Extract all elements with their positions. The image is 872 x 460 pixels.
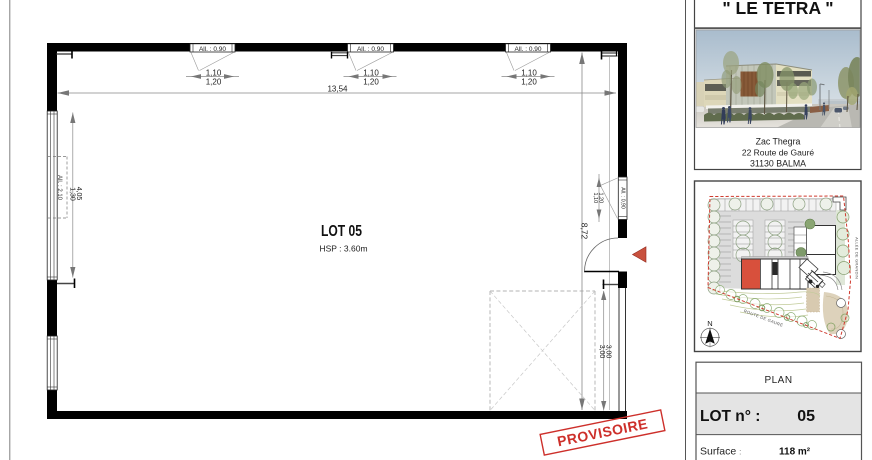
svg-text:LOT 05: LOT 05 [321,223,362,240]
svg-text:All. : 0.90: All. : 0.90 [199,46,226,53]
svg-text:8,72: 8,72 [579,223,589,240]
svg-text:3,00: 3,00 [605,345,612,359]
svg-text:Surface :: Surface : [700,446,741,458]
svg-text:All. : 0.90: All. : 0.90 [357,46,384,53]
svg-text:All. : 0,90: All. : 0,90 [619,187,625,209]
svg-text:ALLÉE DE GRANDIN: ALLÉE DE GRANDIN [855,237,860,279]
svg-text:1,20: 1,20 [363,77,379,86]
svg-text:1,10: 1,10 [592,192,598,203]
svg-text:1,10: 1,10 [363,68,379,77]
svg-text:3,00: 3,00 [598,345,605,359]
svg-text:Zac Thegra: Zac Thegra [756,136,801,146]
svg-text:All. : 0.90: All. : 0.90 [514,46,541,53]
svg-text:05: 05 [797,408,815,425]
svg-text:PLAN: PLAN [764,375,792,386]
svg-text:HSP : 3.60m: HSP : 3.60m [320,244,368,254]
svg-text:N: N [707,319,712,328]
svg-text:31130 BALMA: 31130 BALMA [750,159,806,169]
svg-text:All. : 2.10: All. : 2.10 [56,175,62,201]
svg-text:22 Route de Gauré: 22 Route de Gauré [742,148,815,158]
svg-text:1,20: 1,20 [206,77,222,86]
svg-text:" LE TETRA ": " LE TETRA " [722,0,833,18]
svg-text:1,10: 1,10 [206,68,222,77]
svg-text:LOT n° :: LOT n° : [700,408,760,425]
svg-text:1,30: 1,30 [68,187,75,201]
svg-text:1,10: 1,10 [521,68,537,77]
svg-text:118 m²: 118 m² [779,447,811,458]
svg-text:13,54: 13,54 [327,85,348,94]
svg-text:1,20: 1,20 [521,77,537,86]
svg-text:1,20: 1,20 [598,192,604,203]
